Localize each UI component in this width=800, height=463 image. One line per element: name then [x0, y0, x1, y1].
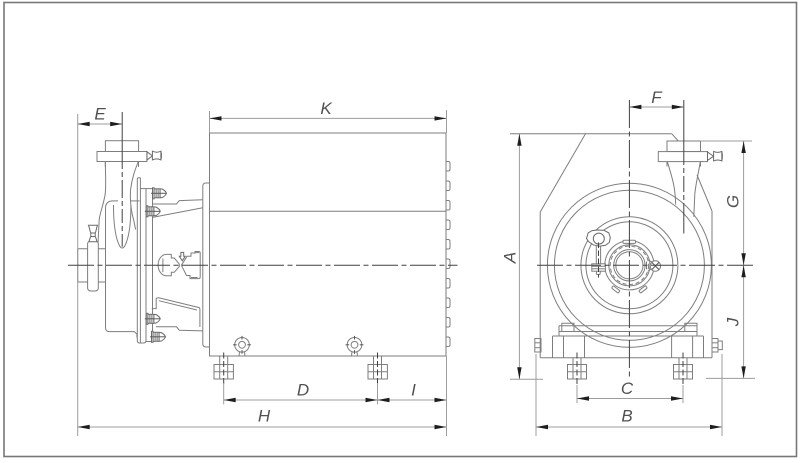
svg-text:F: F — [651, 88, 663, 107]
svg-text:I: I — [411, 380, 416, 399]
svg-text:K: K — [320, 99, 332, 118]
svg-text:H: H — [258, 406, 271, 425]
svg-text:D: D — [297, 380, 309, 399]
svg-text:E: E — [94, 105, 106, 124]
svg-text:A: A — [501, 252, 520, 264]
svg-text:B: B — [621, 406, 632, 425]
svg-text:G: G — [724, 195, 743, 208]
svg-text:C: C — [621, 379, 634, 398]
svg-text:J: J — [724, 317, 743, 327]
